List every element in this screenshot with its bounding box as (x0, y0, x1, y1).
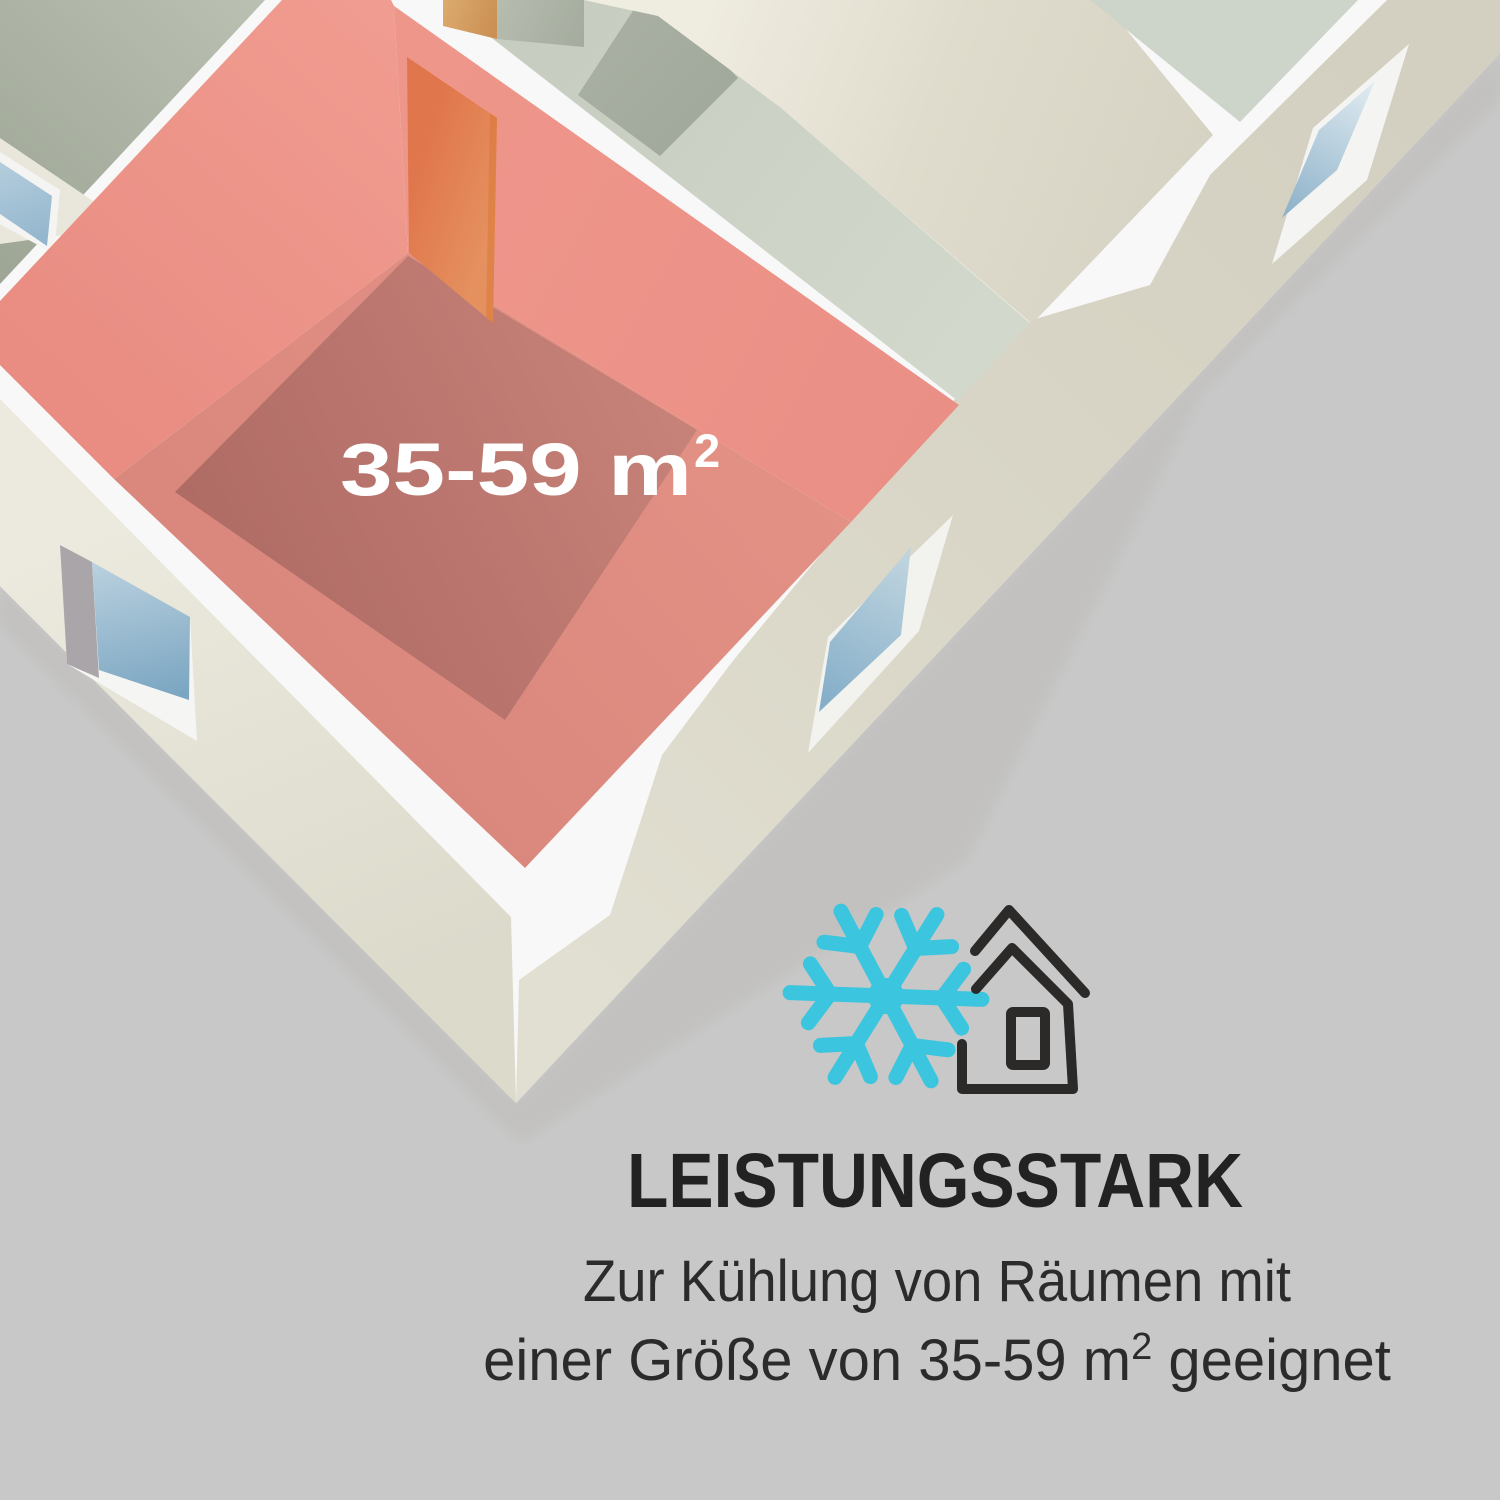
svg-text:Zur Kühlung von Räumen mit: Zur Kühlung von Räumen mit (583, 1249, 1291, 1314)
svg-text:einer Größe von 35-59 m2 geeig: einer Größe von 35-59 m2 geeignet (483, 1326, 1391, 1393)
svg-text:2: 2 (694, 424, 720, 477)
svg-text:35-59 m: 35-59 m (340, 428, 692, 511)
svg-text:LEISTUNGSSTARK: LEISTUNGSSTARK (627, 1138, 1243, 1224)
